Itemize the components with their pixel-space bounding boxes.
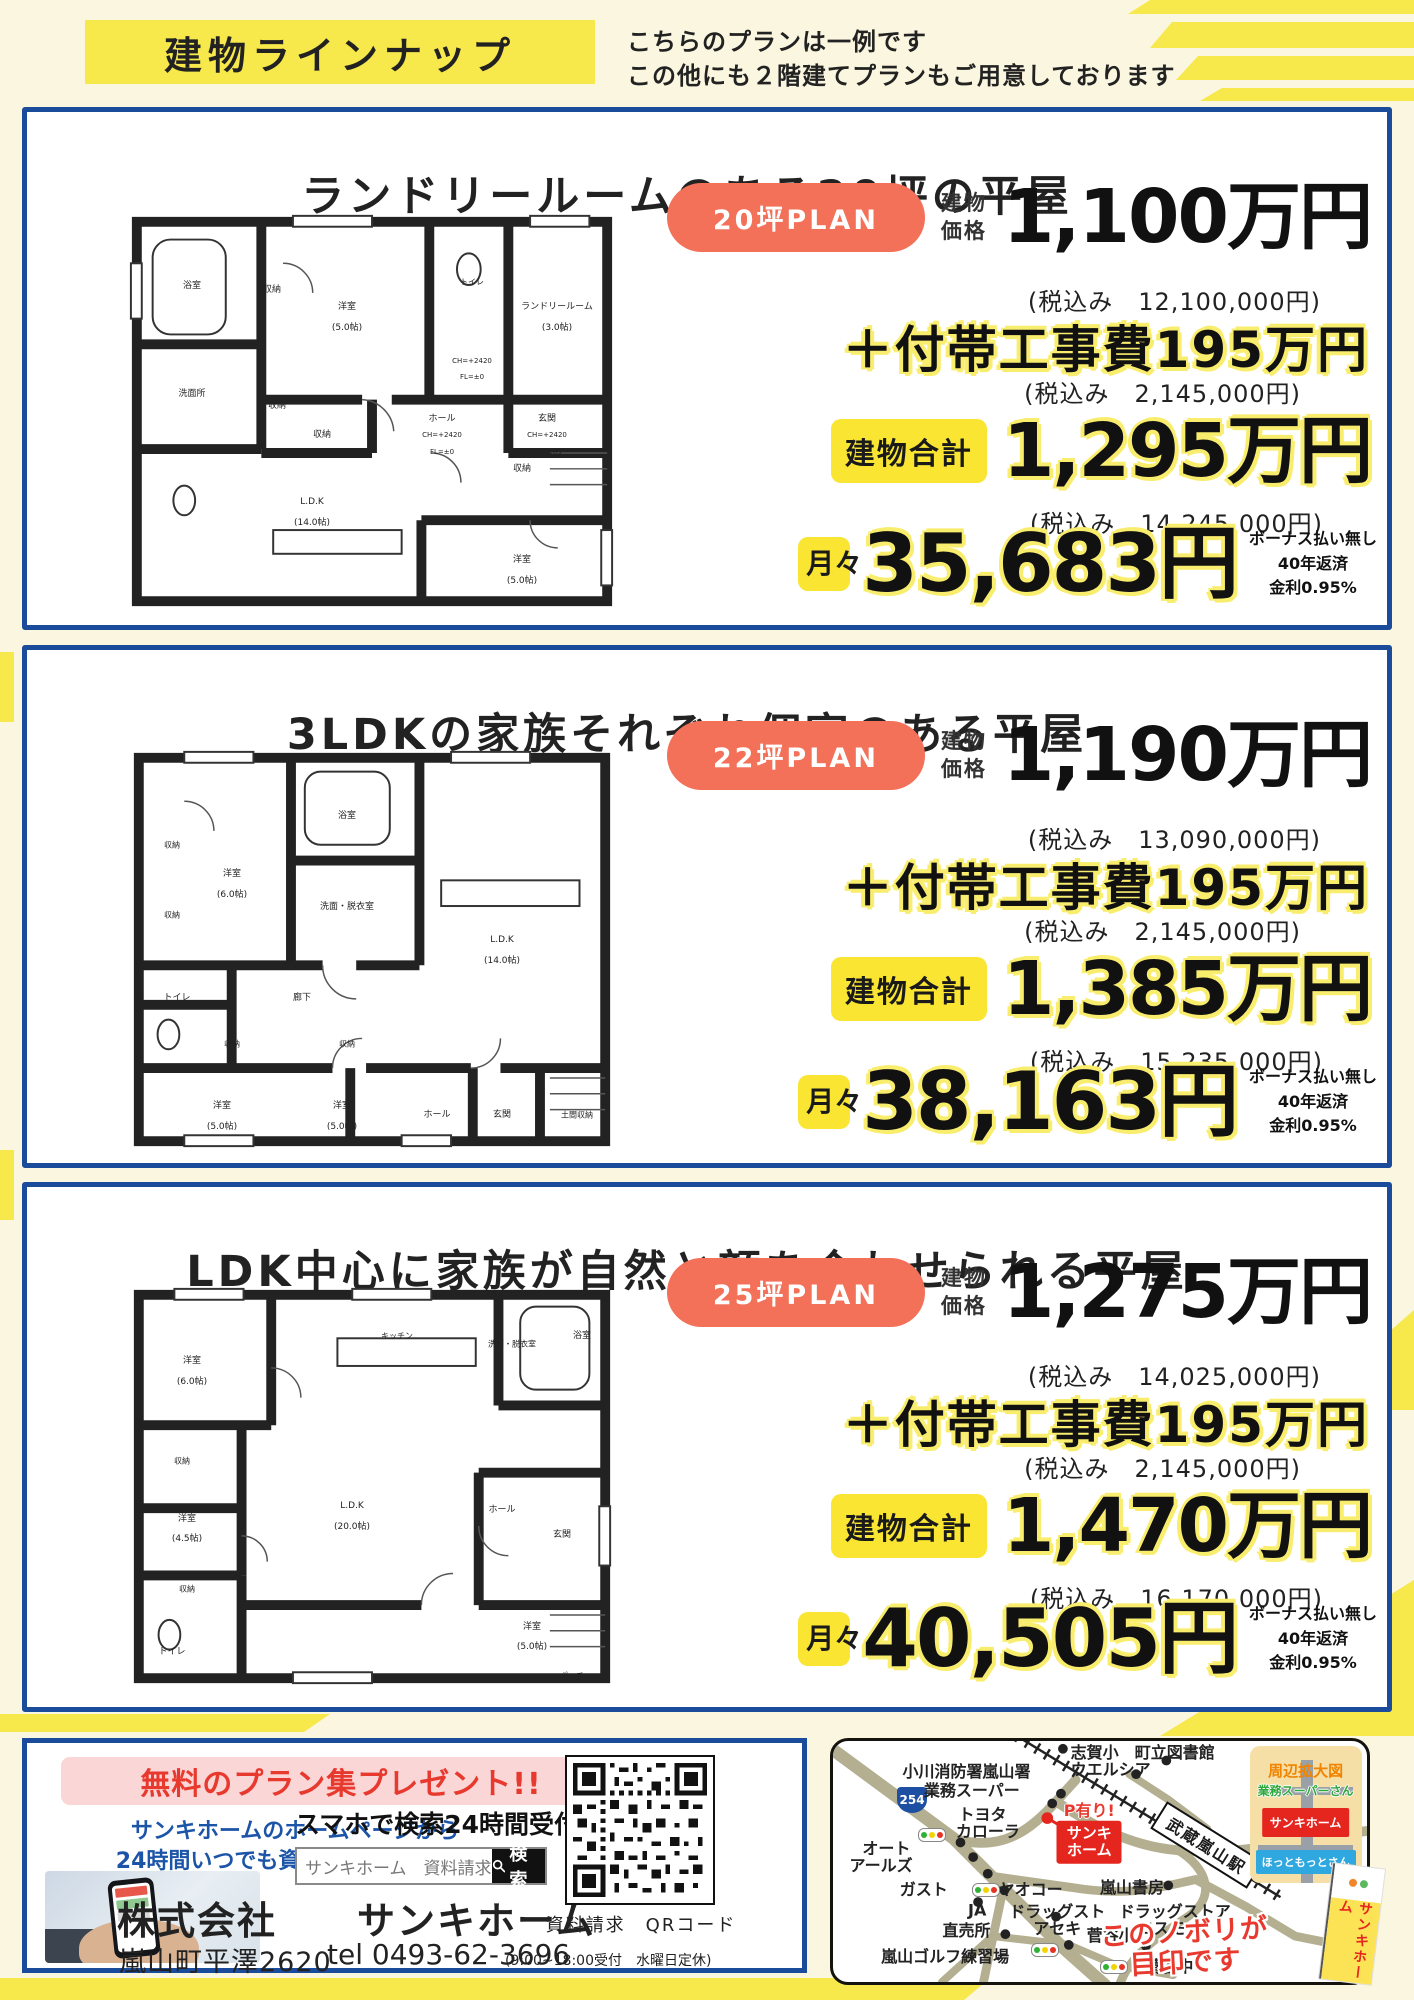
header-note-line1: こちらのプランは一例です (627, 22, 927, 57)
room-label: トイレ (163, 994, 190, 1004)
map-poi-label: ヤオコー (999, 1876, 1063, 1900)
area-map: 武蔵嵐山駅 254 P有り! サンキホーム 周辺拡大図 業務スーパーさん サンキ… (830, 1738, 1370, 1985)
map-poi-label: カローラ (956, 1818, 1020, 1842)
loan-notes: ボーナス払い無し40年返済金利0.95% (1249, 527, 1377, 601)
traffic-light-icon (1031, 1943, 1059, 1957)
room-label: 洗面所 (178, 390, 205, 400)
flag-callout: このノボリが目印です (1100, 1914, 1271, 1982)
decorative-stripe (1128, 0, 1414, 14)
floorplan-drawing (122, 204, 622, 619)
inset-office-label: サンキホーム (1262, 1808, 1350, 1837)
floorplan-22tsubo: 収納洋室(6.0帖)浴室洗面・脱衣室L.D.K(14.0帖)収納トイレ廊下収納収… (122, 742, 622, 1157)
room-label: (5.0帖) (507, 577, 537, 587)
room-label: L.D.K (490, 936, 514, 946)
search-caption: スマホで検索24時間受付 (295, 1805, 545, 1841)
map-poi-label: アールズ (850, 1852, 913, 1876)
room-label: 玄関 (538, 415, 556, 425)
monthly-row: 月々 38,163円 ボーナス払い無し40年返済金利0.95% (798, 1062, 1377, 1142)
room-label: 収納 (164, 912, 180, 921)
room-label: CH=+2420 (527, 433, 567, 441)
page-title: 建物ラインナップ (164, 25, 516, 80)
room-label: 収納 (174, 1457, 190, 1466)
qr-caption: 資料請求 QRコード (535, 1911, 747, 1937)
monthly-payment: 40,505円 (862, 1599, 1237, 1679)
price-label: 建物価格 (941, 727, 987, 784)
header-banner: 建物ラインナップ (85, 20, 595, 84)
contact-box: 無料のプラン集プレゼント!! サンキホームのホームページから24時間いつでも資料… (22, 1738, 807, 1973)
monthly-row: 月々 35,683円 ボーナス払い無し40年返済金利0.95% (798, 524, 1377, 604)
room-label: L.D.K (300, 498, 324, 508)
price-row: 25坪PLAN 建物価格 1,275万円 (667, 1255, 1371, 1329)
room-label: 玄関 (553, 1531, 571, 1541)
price-row: 22坪PLAN 建物価格 1,190万円 (667, 718, 1371, 792)
plan-card-20tsubo: ランドリールームのある20坪の平屋 (22, 107, 1392, 630)
total-price: 1,295万円 (1003, 414, 1371, 488)
decorative-stripe (1200, 88, 1414, 101)
room-label: 収納 (263, 286, 281, 296)
room-label: (6.0帖) (217, 891, 247, 901)
inset-supermarket-label: 業務スーパーさん (1258, 1782, 1354, 1799)
route-254-shield: 254 (897, 1787, 927, 1813)
search-box[interactable]: サンキホーム 資料請求 検索 (295, 1847, 547, 1885)
room-label: 浴室 (573, 1332, 591, 1342)
room-label: 洋室 (178, 1515, 196, 1525)
extra-cost: ＋付帯工事費195万円 (843, 848, 1369, 920)
room-label: 洗面・脱衣室 (488, 1341, 536, 1350)
room-label: (6.0帖) (177, 1378, 207, 1388)
total-price: 1,385万円 (1003, 952, 1371, 1026)
plan-card-25tsubo: LDK中心に家族が自然と顔を合わせられる平屋 (22, 1182, 1392, 1712)
price-label: 建物価格 (941, 1264, 987, 1321)
room-label: 収納 (179, 1586, 195, 1595)
room-label: 洋室 (183, 1357, 201, 1367)
room-label: ランドリールーム (521, 303, 593, 313)
room-label: 洋室 (513, 556, 531, 566)
qr-code (565, 1755, 715, 1905)
total-badge: 建物合計 (831, 957, 987, 1021)
monthly-payment: 38,163円 (862, 1062, 1237, 1142)
room-label: ホール (488, 1506, 515, 1516)
room-label: FL=±0 (460, 374, 484, 382)
parking-note: P有り! (1057, 1797, 1122, 1821)
decorative-stripe (0, 1150, 14, 1220)
total-price: 1,470万円 (1003, 1489, 1371, 1563)
room-label: (14.0帖) (484, 957, 520, 967)
plan-size-pill: 22坪PLAN (667, 721, 925, 790)
office-box: サンキホーム (1057, 1821, 1122, 1864)
traffic-light-icon (918, 1828, 946, 1842)
room-label: 収納 (164, 841, 180, 850)
map-frame: 武蔵嵐山駅 254 P有り! サンキホーム 周辺拡大図 業務スーパーさん サンキ… (830, 1738, 1370, 1985)
office-location: P有り! サンキホーム (1057, 1797, 1122, 1864)
room-label: 土間収納 (561, 1111, 593, 1120)
map-poi-label: 嵐山ゴルフ練習場 (881, 1943, 1009, 1967)
monthly-badge: 月々 (798, 1075, 850, 1129)
decorative-stripe (1176, 56, 1414, 80)
room-label: CH=+2420 (452, 358, 492, 366)
room-label: L.D.K (340, 1502, 364, 1512)
room-label: 洋室 (223, 870, 241, 880)
building-price: 1,100万円 (1003, 180, 1371, 254)
monthly-badge: 月々 (798, 1612, 850, 1666)
room-label: 収納 (513, 465, 531, 475)
map-poi-label: ガスト (900, 1876, 948, 1900)
price-row: 20坪PLAN 建物価格 1,100万円 (667, 180, 1371, 254)
loan-notes: ボーナス払い無し40年返済金利0.95% (1249, 1602, 1377, 1676)
search-input[interactable]: サンキホーム 資料請求 (297, 1849, 492, 1883)
extra-cost-tax: (税込み 2,145,000円) (1024, 374, 1301, 409)
traffic-light-icon (972, 1883, 1000, 1897)
room-label: 洋室 (523, 1623, 541, 1633)
decorative-stripe (0, 652, 14, 722)
room-label: キッチン (381, 1333, 413, 1342)
total-row: 建物合計 1,295万円 (831, 414, 1371, 488)
total-badge: 建物合計 (831, 1494, 987, 1558)
room-label: ホール (423, 1111, 450, 1121)
room-label: 収納 (224, 1041, 240, 1050)
floorplan-20tsubo: 浴室収納洋室(5.0帖)トイレCH=+2420FL=±0ランドリールーム(3.0… (122, 204, 622, 619)
building-price: 1,275万円 (1003, 1255, 1371, 1329)
extra-cost-tax: (税込み 2,145,000円) (1024, 1449, 1301, 1484)
map-poi-label: 直売所 (942, 1917, 990, 1941)
plan-size-pill: 20坪PLAN (667, 183, 925, 252)
plan-card-22tsubo: 3LDKの家族それぞれ個室のある平屋 (22, 645, 1392, 1168)
monthly-row: 月々 40,505円 ボーナス払い無し40年返済金利0.95% (798, 1599, 1377, 1679)
map-poi-label: 業務スーパー (924, 1777, 1020, 1801)
room-label: (20.0帖) (334, 1523, 370, 1533)
room-label: トイレ (158, 1648, 185, 1658)
map-poi-label: アセキ (1033, 1915, 1081, 1939)
map-poi-label: ウエルシア (1071, 1756, 1151, 1780)
monthly-payment: 35,683円 (862, 524, 1237, 604)
room-label: FL=-185 (532, 449, 562, 457)
floorplan-25tsubo: 洋室(6.0帖)キッチン洗面・脱衣室浴室収納L.D.K(20.0帖)洋室(4.5… (122, 1279, 622, 1694)
room-label: (5.0帖) (327, 1123, 357, 1133)
room-label: ポーチ (560, 1673, 584, 1682)
room-label: ホール (428, 415, 455, 425)
decorative-stripe (1150, 22, 1414, 48)
total-row: 建物合計 1,385万円 (831, 952, 1371, 1026)
company-address: 嵐山町平澤2620 (119, 1940, 332, 1979)
room-label: 収納 (268, 402, 286, 412)
flag-text: サンキホーム (1326, 1898, 1376, 1984)
floorplan-drawing (122, 742, 622, 1157)
room-label: 浴室 (183, 282, 201, 292)
room-label: 玄関 (493, 1111, 511, 1121)
room-label: (4.5帖) (172, 1535, 202, 1545)
extra-cost-tax: (税込み 2,145,000円) (1024, 912, 1301, 947)
room-label: (5.0帖) (207, 1123, 237, 1133)
room-label: 洋室 (213, 1102, 231, 1112)
search-button[interactable]: 検索 (492, 1849, 546, 1883)
monthly-badge: 月々 (798, 537, 850, 591)
room-label: 収納 (313, 431, 331, 441)
decorative-stripe (0, 1714, 330, 1732)
price-label: 建物価格 (941, 189, 987, 246)
room-label: トイレ (460, 278, 484, 287)
floorplan-drawing (122, 1279, 622, 1694)
company-name: 株式会社 サンキホーム (117, 1890, 557, 1945)
room-label: FL=±0 (430, 449, 454, 457)
loan-notes: ボーナス払い無し40年返済金利0.95% (1249, 1065, 1377, 1139)
plan-size-pill: 25坪PLAN (667, 1258, 925, 1327)
room-label: 洗面・脱衣室 (320, 903, 374, 913)
total-row: 建物合計 1,470万円 (831, 1489, 1371, 1563)
room-label: CH=+2420 (422, 433, 462, 441)
room-label: 洋室 (333, 1102, 351, 1112)
room-label: (5.0帖) (332, 324, 362, 334)
map-poi-label: 嵐山書房 (1100, 1874, 1164, 1898)
room-label: 収納 (339, 1041, 355, 1050)
map-inset: 周辺拡大図 業務スーパーさん サンキホーム ほっともっとさん (1250, 1746, 1362, 1883)
free-plan-banner: 無料のプラン集プレゼント!! (61, 1757, 621, 1805)
header-note-line2: この他にも２階建てプランもご用意しております (627, 56, 1176, 91)
inset-title: 周辺拡大図 (1268, 1760, 1343, 1781)
room-label: (5.0帖) (517, 1643, 547, 1653)
room-label: (14.0帖) (294, 519, 330, 529)
room-label: 廊下 (293, 994, 311, 1004)
room-label: (3.0帖) (542, 324, 572, 334)
phone-hours: (9:00~18:00受付 水曜日定休) (505, 1950, 711, 1970)
room-label: 浴室 (338, 812, 356, 822)
building-price: 1,190万円 (1003, 718, 1371, 792)
extra-cost: ＋付帯工事費195万円 (843, 310, 1369, 382)
search-icon (492, 1859, 506, 1873)
room-label: 洋室 (338, 303, 356, 313)
total-badge: 建物合計 (831, 419, 987, 483)
extra-cost: ＋付帯工事費195万円 (843, 1385, 1369, 1457)
